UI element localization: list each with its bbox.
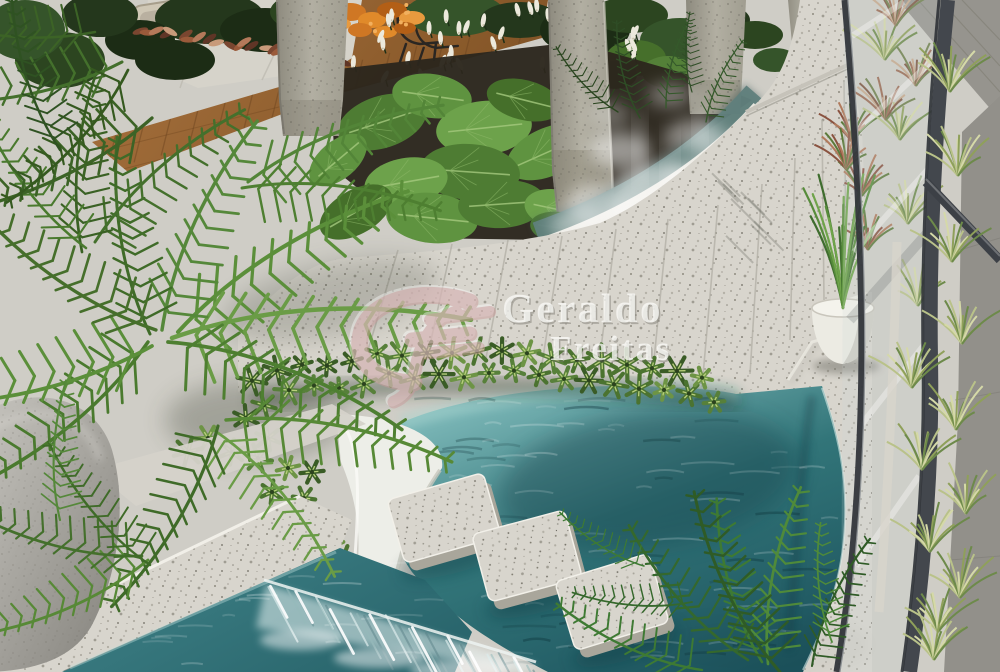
concrete-column — [276, 0, 348, 136]
scene-render: Geraldo Geraldo Freitas Freitas — [0, 0, 1000, 672]
watermark-text-line2: Freitas — [550, 329, 672, 368]
watermark-text-line1: Geraldo — [502, 285, 663, 331]
render-stage: Geraldo Geraldo Freitas Freitas — [0, 0, 1000, 672]
